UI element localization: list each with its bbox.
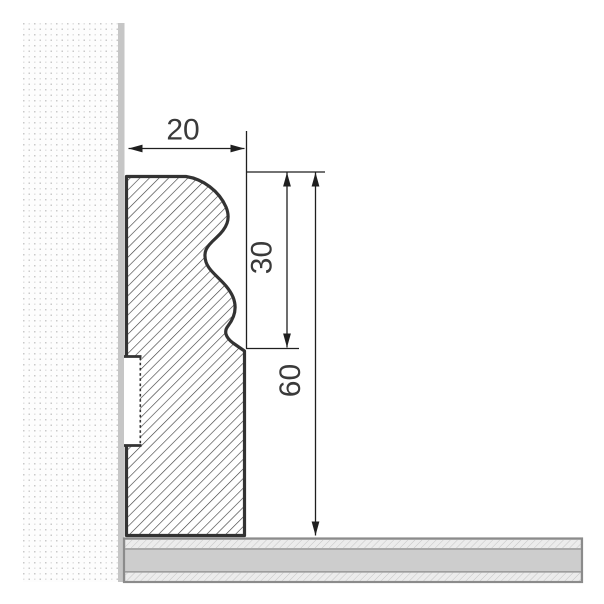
floor-section xyxy=(124,539,582,583)
technical-drawing: 20 30 60 xyxy=(0,0,604,604)
arrow-down-icon xyxy=(283,334,291,348)
drawing-canvas: 20 30 60 xyxy=(0,0,604,604)
dimension-total-height: 60 xyxy=(274,173,319,536)
arrow-down-icon xyxy=(312,522,320,536)
arrow-up-icon xyxy=(283,173,291,187)
arrow-right-icon xyxy=(231,145,245,153)
rear-groove xyxy=(124,357,142,446)
skirting-profile xyxy=(127,177,245,536)
floor-bottom-screed-hatch xyxy=(126,573,581,581)
arrow-left-icon xyxy=(129,145,143,153)
rear-groove-cavity xyxy=(124,357,140,446)
dimension-label-60: 60 xyxy=(274,364,307,397)
arrow-up-icon xyxy=(312,173,320,187)
dimension-upper-height: 30 xyxy=(246,173,291,348)
dimension-label-30: 30 xyxy=(246,241,279,274)
wall-section xyxy=(23,23,118,582)
dimension-profile-depth: 20 xyxy=(129,114,245,153)
floor-top-screed-hatch xyxy=(126,540,581,548)
dimension-label-20: 20 xyxy=(166,114,199,147)
wall-edge-strip xyxy=(118,23,125,582)
